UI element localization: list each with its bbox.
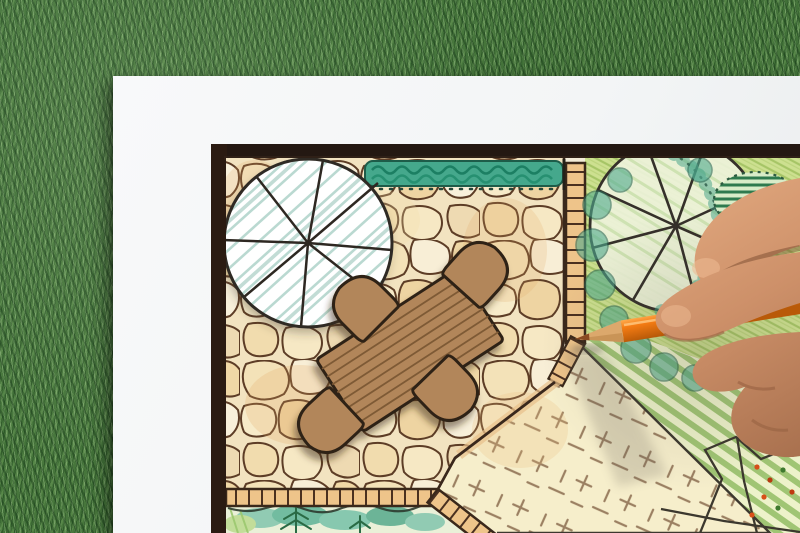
thumb-highlight — [661, 305, 691, 327]
garden-plan-drawing — [0, 0, 800, 533]
planting-bed — [224, 504, 466, 533]
hedge-strip — [365, 159, 564, 190]
photo-scene — [0, 0, 800, 533]
pencil-tip-shadow — [572, 344, 604, 354]
